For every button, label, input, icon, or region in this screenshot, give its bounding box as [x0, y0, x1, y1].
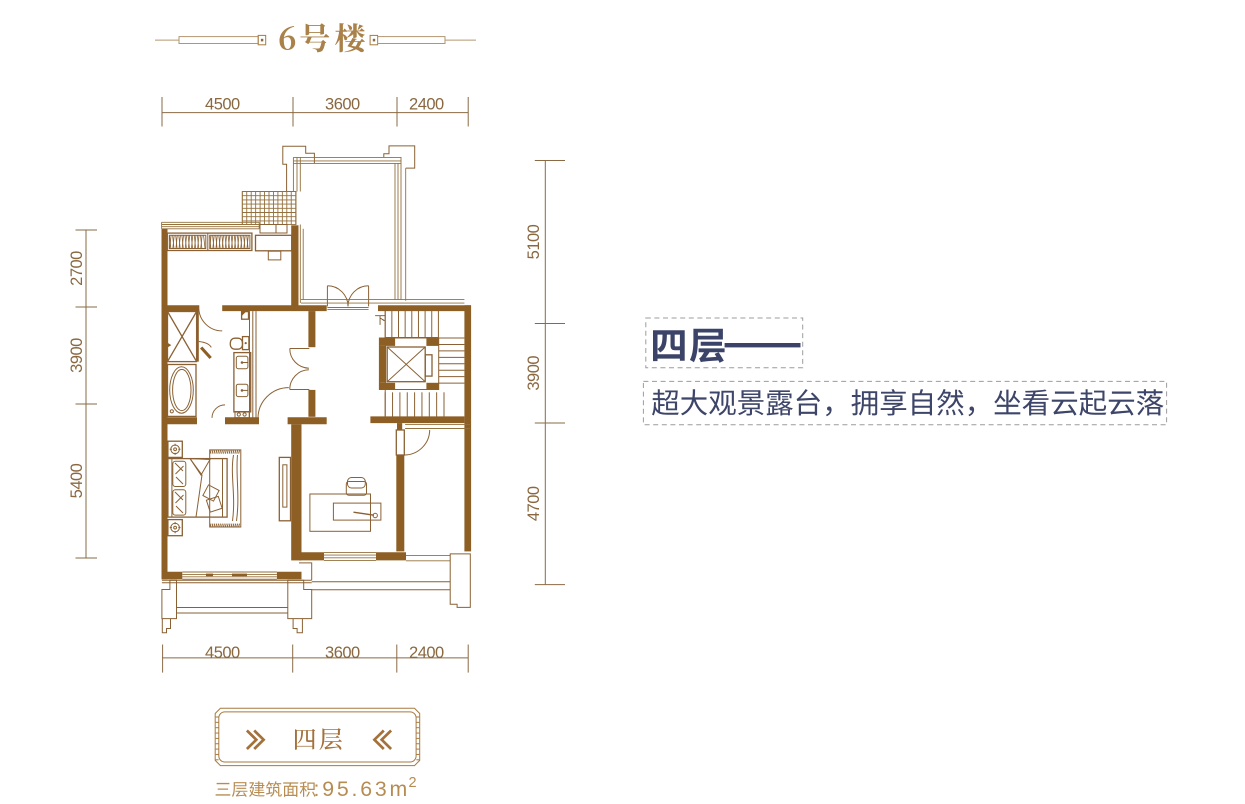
svg-text:4500: 4500 [205, 96, 240, 114]
svg-text:2700: 2700 [68, 251, 86, 286]
svg-text:2: 2 [409, 775, 417, 791]
svg-text:2400: 2400 [409, 644, 444, 662]
svg-text:5400: 5400 [68, 463, 86, 498]
svg-text:2400: 2400 [409, 96, 444, 114]
svg-text:3900: 3900 [68, 338, 86, 373]
svg-text:3600: 3600 [325, 644, 360, 662]
svg-text::95.63m: :95.63m [314, 777, 411, 801]
svg-text:3900: 3900 [525, 356, 543, 391]
svg-text:3600: 3600 [325, 96, 360, 114]
svg-text:4500: 4500 [205, 644, 240, 662]
svg-text:4700: 4700 [525, 486, 543, 521]
svg-text:5100: 5100 [525, 224, 543, 259]
